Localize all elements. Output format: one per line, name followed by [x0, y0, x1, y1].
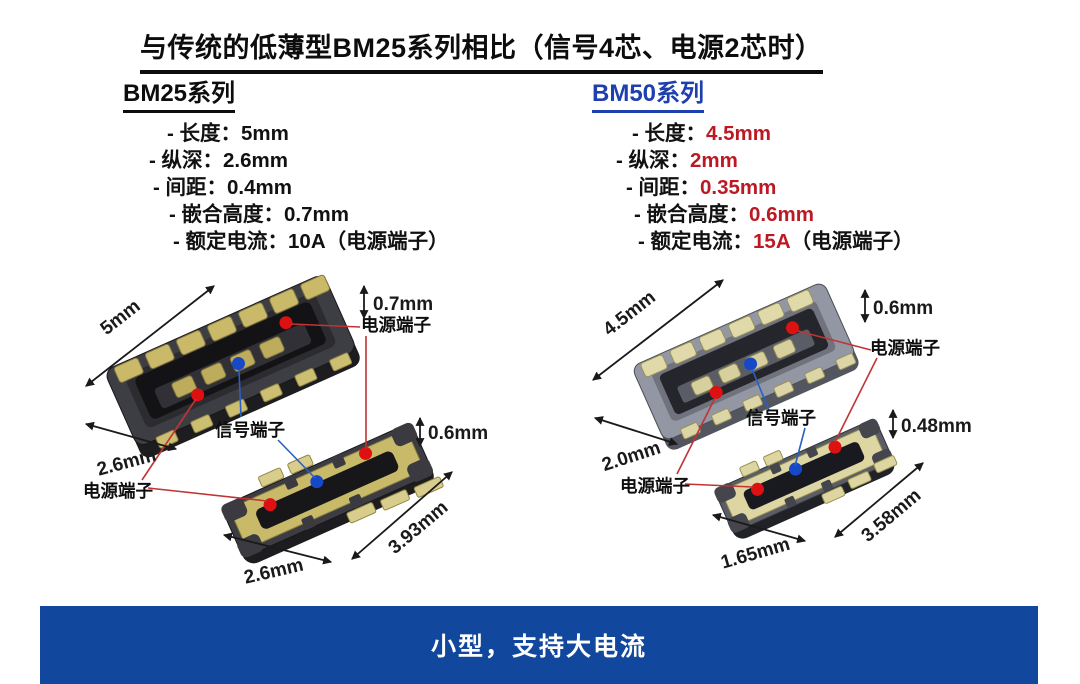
power-terminal-label: 电源端子 [83, 481, 153, 501]
signal-terminal-label: 信号端子 [215, 420, 285, 440]
spec-row: - 间距：0.35mm [626, 174, 914, 201]
spec-row: - 额定电流：10A（电源端子） [173, 228, 449, 255]
signal-terminal-label: 信号端子 [746, 408, 816, 428]
bottom-width-dim: 1.65mm [719, 534, 793, 574]
spec-suffix: （电源端子） [791, 230, 914, 253]
power-terminal-label: 电源端子 [620, 476, 690, 496]
diagram-bm25: 电源端子 信号端子 电源端子 5mm 0.7mm 2.6mm 0.6mm 3.9… [28, 268, 533, 600]
spec-row: - 嵌合高度：0.6mm [634, 201, 914, 228]
spec-value: 0.6mm [749, 203, 814, 226]
footer-banner: 小型，支持大电流 [40, 606, 1038, 684]
spec-value: 5mm [241, 122, 289, 145]
bm50-heading: BM50系列 [592, 73, 704, 113]
spec-value: 4.5mm [706, 122, 771, 145]
spec-label: - 长度： [167, 122, 241, 145]
spec-row: - 纵深：2.6mm [149, 147, 449, 174]
spec-row: - 额定电流：15A（电源端子） [638, 228, 914, 255]
top-height-dim: 0.6mm [873, 298, 933, 319]
spec-row: - 间距：0.4mm [153, 174, 449, 201]
spec-value: 10A [288, 230, 326, 253]
top-length-dim: 4.5mm [599, 287, 659, 341]
spec-value: 0.7mm [284, 203, 349, 226]
spec-value: 2mm [690, 149, 738, 172]
power-terminal-label: 电源端子 [870, 338, 940, 358]
power-terminal-label: 电源端子 [361, 315, 431, 335]
bottom-height-dim: 0.48mm [901, 416, 972, 437]
spec-label: - 嵌合高度： [634, 203, 749, 226]
spec-label: - 额定电流： [638, 230, 753, 253]
top-height-dim: 0.7mm [373, 294, 433, 315]
spec-label: - 纵深： [149, 149, 223, 172]
spec-label: - 纵深： [616, 149, 690, 172]
bottom-height-dim: 0.6mm [428, 423, 488, 444]
spec-value: 0.35mm [700, 176, 776, 199]
spec-row: - 嵌合高度：0.7mm [169, 201, 449, 228]
spec-label: - 长度： [632, 122, 706, 145]
spec-value: 2.6mm [223, 149, 288, 172]
spec-row: - 长度：5mm [167, 120, 449, 147]
top-length-dim: 5mm [97, 296, 145, 340]
spec-column-bm50: BM50系列 - 长度：4.5mm - 纵深：2mm - 间距：0.35mm -… [592, 73, 914, 255]
bm25-heading: BM25系列 [123, 73, 235, 113]
spec-row: - 长度：4.5mm [632, 120, 914, 147]
slide-page: 与传统的低薄型BM25系列相比（信号4芯、电源2芯时） BM25系列 - 长度：… [0, 0, 1080, 684]
spec-label: - 额定电流： [173, 230, 288, 253]
top-depth-dim: 2.0mm [599, 437, 663, 476]
spec-row: - 纵深：2mm [616, 147, 914, 174]
spec-suffix: （电源端子） [326, 230, 449, 253]
spec-label: - 嵌合高度： [169, 203, 284, 226]
spec-column-bm25: BM25系列 - 长度：5mm - 纵深：2.6mm - 间距：0.4mm - … [123, 73, 449, 255]
spec-label: - 间距： [153, 176, 227, 199]
page-title: 与传统的低薄型BM25系列相比（信号4芯、电源2芯时） [140, 26, 823, 74]
spec-value: 15A [753, 230, 791, 253]
page-title-wrap: 与传统的低薄型BM25系列相比（信号4芯、电源2芯时） [140, 26, 823, 74]
spec-value: 0.4mm [227, 176, 292, 199]
footer-text: 小型，支持大电流 [431, 627, 647, 663]
diagram-bm50: 电源端子 信号端子 电源端子 4.5mm 0.6mm 2.0mm 0.48mm … [553, 268, 1058, 600]
spec-label: - 间距： [626, 176, 700, 199]
bottom-length-dim: 3.58mm [858, 485, 926, 547]
top-depth-dim: 2.6mm [95, 445, 159, 481]
